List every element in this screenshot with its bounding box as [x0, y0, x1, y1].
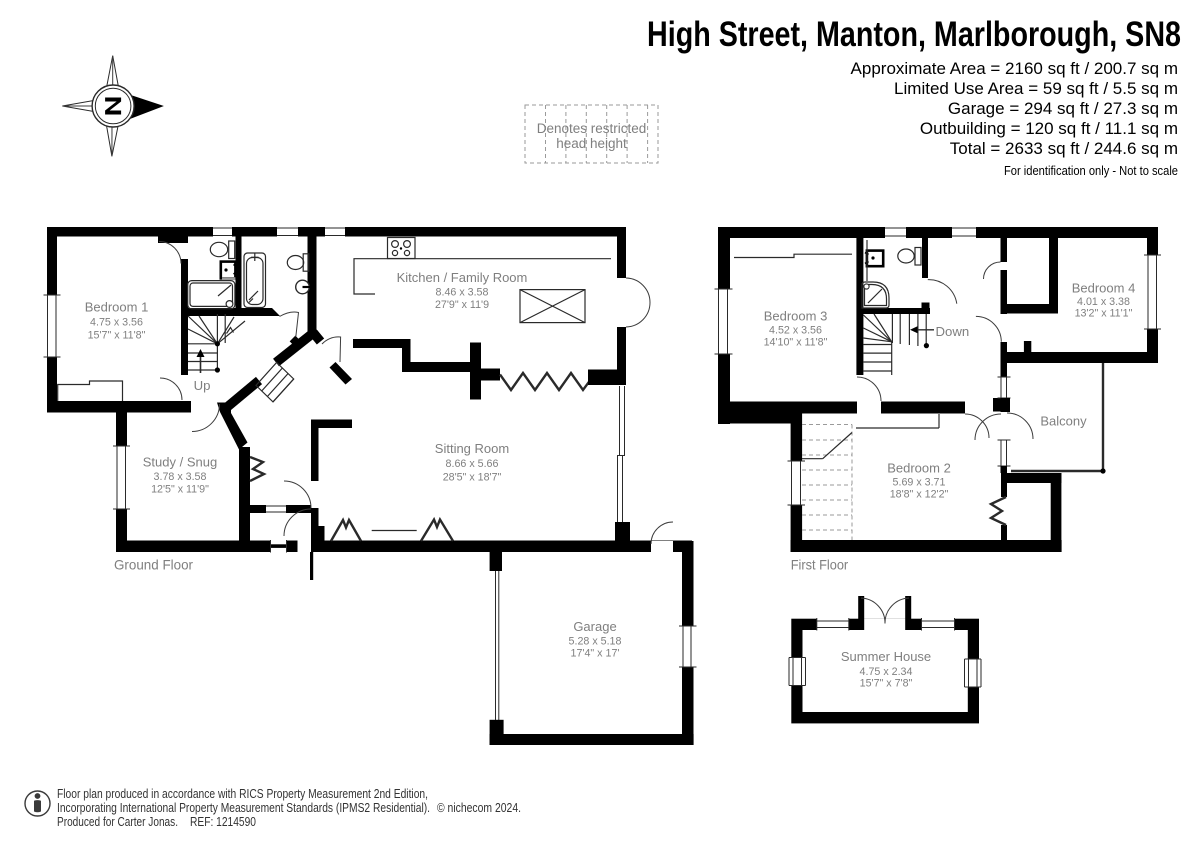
svg-text:12'5" x 11'9": 12'5" x 11'9": [151, 484, 209, 496]
svg-text:Sitting Room: Sitting Room: [435, 441, 509, 456]
svg-text:3.78 x 3.58: 3.78 x 3.58: [154, 471, 207, 483]
svg-text:Bedroom 1: Bedroom 1: [85, 300, 149, 315]
svg-text:17'4" x 17': 17'4" x 17': [571, 648, 620, 660]
svg-text:High Street, Manton, Marlborou: High Street, Manton, Marlborough, SN8: [647, 15, 1181, 54]
svg-text:Limited Use Area = 59 sq ft /: Limited Use Area = 59 sq ft / 5.5 sq m: [894, 79, 1178, 98]
svg-text:Kitchen / Family Room: Kitchen / Family Room: [397, 270, 528, 285]
svg-text:Summer House: Summer House: [841, 649, 931, 664]
svg-text:28'5" x 18'7": 28'5" x 18'7": [443, 472, 502, 484]
svg-text:14'10" x 11'8": 14'10" x 11'8": [764, 337, 828, 349]
svg-text:Down: Down: [936, 324, 970, 339]
svg-text:8.66 x 5.66: 8.66 x 5.66: [446, 458, 499, 470]
svg-text:Produced for Carter Jonas.: Produced for Carter Jonas.: [57, 814, 178, 829]
svg-text:Bedroom 4: Bedroom 4: [1072, 281, 1136, 296]
svg-text:5.69 x 3.71: 5.69 x 3.71: [893, 477, 946, 489]
svg-text:15'7" x 11'8": 15'7" x 11'8": [88, 330, 146, 342]
svg-text:Garage: Garage: [573, 619, 616, 634]
svg-text:REF: 1214590: REF: 1214590: [190, 814, 256, 829]
svg-text:Outbuilding = 120 sq ft / 11.1: Outbuilding = 120 sq ft / 11.1 sq m: [920, 119, 1178, 138]
svg-text:First Floor: First Floor: [791, 557, 849, 573]
svg-text:4.75 x 3.56: 4.75 x 3.56: [90, 317, 143, 329]
svg-text:Denotes restricted: Denotes restricted: [537, 121, 647, 136]
svg-text:8.46 x 3.58: 8.46 x 3.58: [436, 287, 489, 299]
svg-text:Floor plan produced in accorda: Floor plan produced in accordance with R…: [57, 786, 428, 801]
svg-text:4.01 x 3.38: 4.01 x 3.38: [1077, 296, 1130, 308]
svg-text:Balcony: Balcony: [1040, 414, 1087, 429]
svg-text:27'9" x 11'9: 27'9" x 11'9: [435, 299, 489, 311]
svg-text:Up: Up: [194, 378, 211, 393]
svg-text:13'2" x 11'1": 13'2" x 11'1": [1075, 308, 1133, 320]
svg-text:4.52 x 3.56: 4.52 x 3.56: [769, 325, 822, 337]
svg-text:5.28 x 5.18: 5.28 x 5.18: [569, 636, 622, 648]
svg-text:Incorporating International Pr: Incorporating International Property Mea…: [57, 800, 430, 815]
svg-text:Bedroom 3: Bedroom 3: [764, 309, 828, 324]
svg-text:Ground Floor: Ground Floor: [114, 557, 193, 573]
svg-text:© nichecom 2024.: © nichecom 2024.: [437, 800, 521, 815]
svg-text:15'7" x 7'8": 15'7" x 7'8": [860, 678, 913, 690]
svg-text:For identification only - Not: For identification only - Not to scale: [1004, 164, 1178, 178]
svg-text:Study / Snug: Study / Snug: [143, 455, 217, 470]
svg-text:Garage = 294 sq ft / 27.3 sq m: Garage = 294 sq ft / 27.3 sq m: [948, 99, 1178, 118]
svg-text:head height: head height: [556, 136, 627, 151]
svg-text:Approximate Area = 2160 sq ft: Approximate Area = 2160 sq ft / 200.7 sq…: [851, 59, 1178, 78]
svg-text:Total = 2633 sq ft / 244.6 sq: Total = 2633 sq ft / 244.6 sq m: [950, 139, 1178, 158]
svg-text:18'8" x 12'2": 18'8" x 12'2": [890, 489, 949, 501]
svg-text:4.75 x 2.34: 4.75 x 2.34: [860, 666, 913, 678]
svg-text:Bedroom 2: Bedroom 2: [887, 461, 951, 476]
